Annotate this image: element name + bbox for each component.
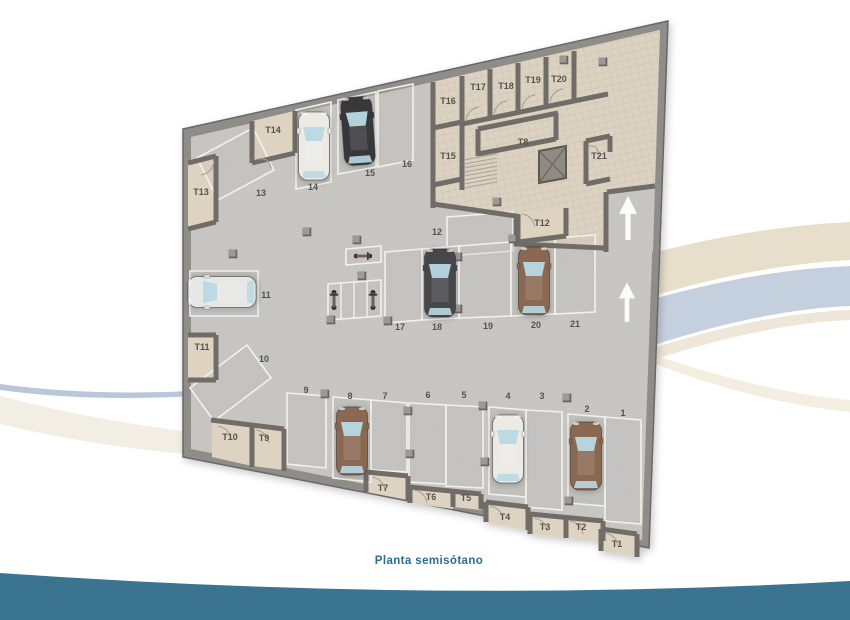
storage-label: T17 bbox=[470, 82, 486, 92]
parking-label: 9 bbox=[303, 385, 308, 395]
car-space-11 bbox=[187, 275, 259, 309]
stall-1 bbox=[605, 417, 641, 524]
storage-label: T3 bbox=[540, 522, 551, 532]
storage-label: T19 bbox=[525, 75, 541, 85]
parking-label: 5 bbox=[461, 390, 466, 400]
car-space-14 bbox=[297, 111, 331, 183]
car-space-8 bbox=[335, 406, 369, 478]
page: 1 2 3 4 5 6 7 8 9 10 11 12 13 14 15 16 1… bbox=[0, 0, 850, 620]
storage-label: T7 bbox=[378, 483, 389, 493]
elevator bbox=[539, 146, 566, 183]
car-space-4 bbox=[491, 414, 525, 486]
storage-label: T13 bbox=[193, 187, 209, 197]
stall-3 bbox=[526, 410, 562, 510]
car-space-2 bbox=[569, 421, 603, 493]
storage-label: T2 bbox=[576, 522, 587, 532]
car-space-15 bbox=[339, 95, 378, 169]
swoosh-beige-left bbox=[0, 396, 210, 456]
parking-label: 12 bbox=[432, 227, 442, 237]
parking-label: 1 bbox=[620, 408, 625, 418]
parking-label: 19 bbox=[483, 321, 493, 331]
footer-teal-band bbox=[0, 573, 850, 620]
storage-label: T10 bbox=[222, 432, 238, 442]
storage-label: T12 bbox=[534, 218, 550, 228]
parking-label: 14 bbox=[308, 182, 318, 192]
storage-label: T16 bbox=[440, 96, 456, 106]
storage-label: T6 bbox=[426, 492, 437, 502]
stall-6 bbox=[409, 403, 446, 484]
car-space-18 bbox=[423, 248, 457, 320]
parking-label: 2 bbox=[584, 404, 589, 414]
parking-label: 21 bbox=[570, 319, 580, 329]
parking-label: 17 bbox=[395, 322, 405, 332]
storage-label: T5 bbox=[461, 493, 472, 503]
stall-19 bbox=[459, 242, 511, 318]
storage-label: T8 bbox=[518, 137, 529, 147]
parking-label: 20 bbox=[531, 320, 541, 330]
storage-label: T18 bbox=[498, 81, 514, 91]
storage-label: T1 bbox=[612, 539, 623, 549]
parking-label: 11 bbox=[261, 290, 271, 300]
parking-label: 16 bbox=[402, 159, 412, 169]
stall-17 bbox=[385, 249, 422, 323]
storage-label: T14 bbox=[265, 125, 281, 135]
stall-7 bbox=[371, 400, 407, 472]
parking-label: 7 bbox=[382, 391, 387, 401]
parking-label: 8 bbox=[347, 391, 352, 401]
parking-label: 15 bbox=[365, 168, 375, 178]
storage-label: T9 bbox=[259, 433, 270, 443]
swoosh-blue-left bbox=[0, 384, 210, 398]
parking-label: 6 bbox=[425, 390, 430, 400]
storage-label: T21 bbox=[591, 151, 607, 161]
floor-plan-image: 1 2 3 4 5 6 7 8 9 10 11 12 13 14 15 16 1… bbox=[0, 0, 850, 620]
floor-plan: 1 2 3 4 5 6 7 8 9 10 11 12 13 14 15 16 1… bbox=[183, 20, 668, 557]
parking-label: 10 bbox=[259, 354, 269, 364]
stall-5 bbox=[446, 405, 483, 488]
storage-label: T11 bbox=[194, 342, 209, 352]
storage-label: T20 bbox=[551, 74, 567, 84]
stall-9 bbox=[287, 393, 326, 468]
storage-label: T4 bbox=[500, 512, 511, 522]
stall-16 bbox=[378, 84, 413, 167]
swoosh-faint-right bbox=[640, 350, 850, 412]
plan-caption: Planta semisótano bbox=[375, 555, 483, 567]
car-space-20 bbox=[517, 246, 551, 318]
parking-label: 4 bbox=[505, 391, 510, 401]
parking-label: 18 bbox=[432, 322, 442, 332]
parking-label: 3 bbox=[539, 391, 544, 401]
storage-label: T15 bbox=[440, 151, 456, 161]
parking-label: 13 bbox=[256, 188, 266, 198]
